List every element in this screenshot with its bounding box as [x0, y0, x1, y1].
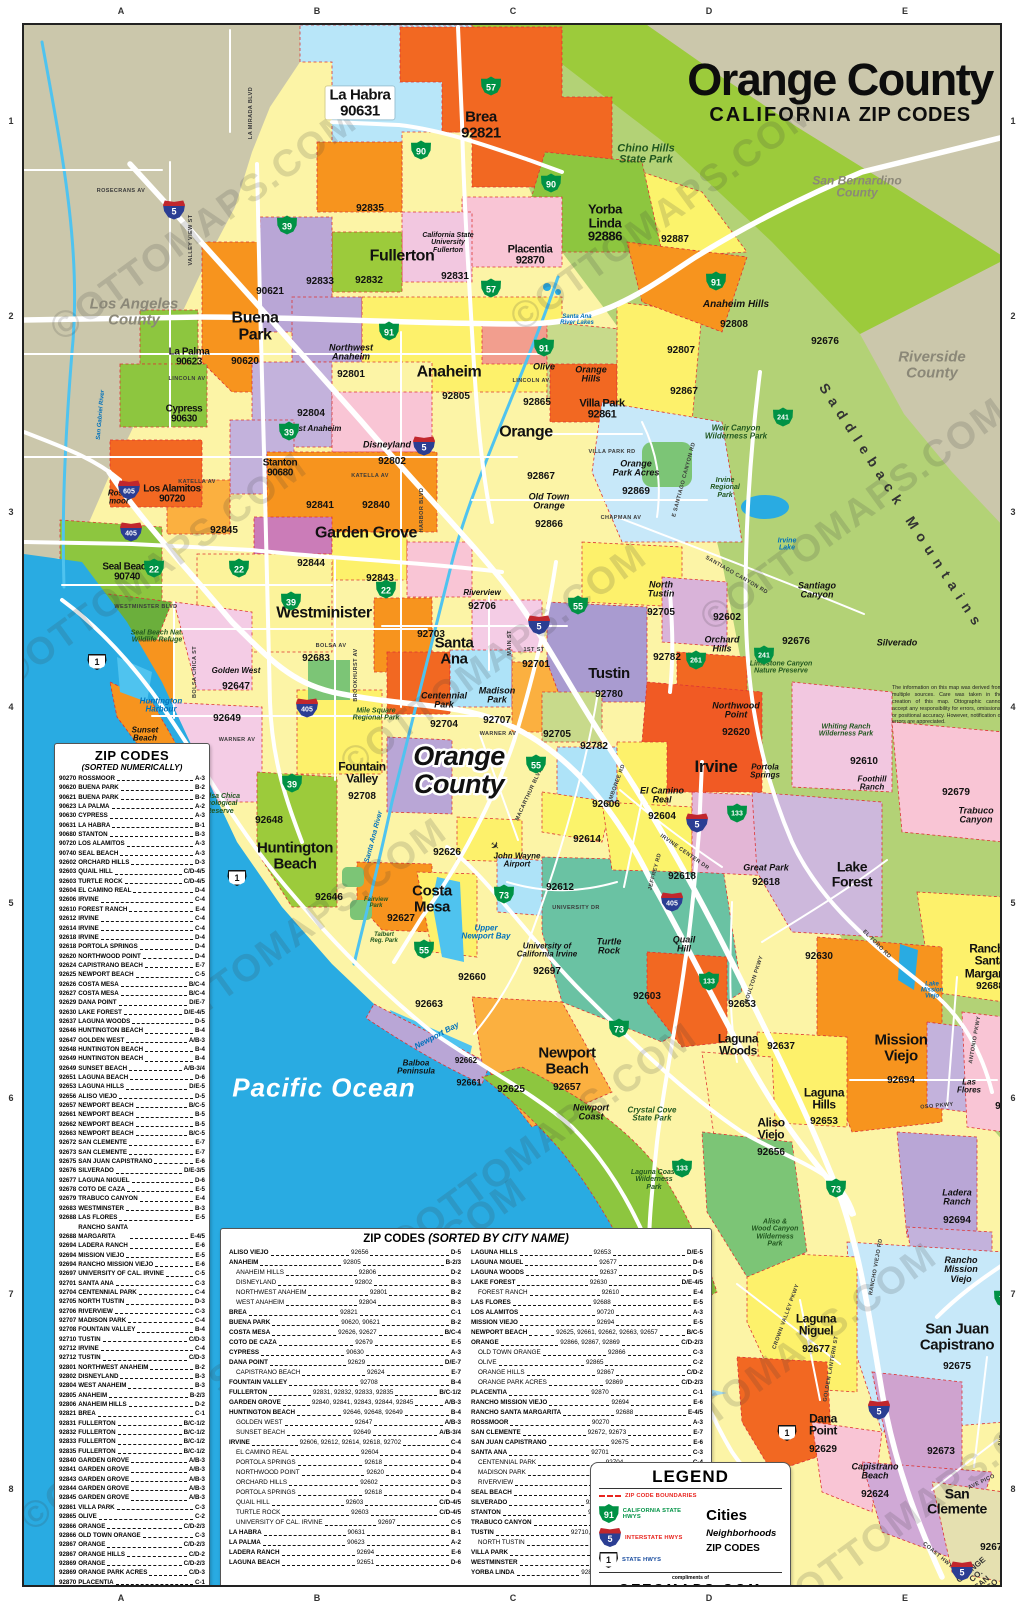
grid-number: 1 — [8, 116, 13, 126]
zip-list-row: 90620BUENA PARKB-2 — [59, 783, 205, 792]
zip-list-row: 92657NEWPORT BEACHB/C-5 — [59, 1101, 205, 1110]
zip-list-row: 92804WEST ANAHEIMB-3 — [59, 1381, 205, 1390]
grid-number: 4 — [8, 702, 13, 712]
grid-letter: A — [118, 1593, 125, 1603]
zip-list-row: 92869ORANGEC/D-2/3 — [59, 1559, 205, 1568]
zip-list-row: 92708FOUNTAIN VALLEYB-4 — [59, 1325, 205, 1334]
grid-number: 5 — [8, 898, 13, 908]
city-list-row: SAN JUAN CAPISTRANO92675E-6 — [471, 1438, 703, 1448]
zip-list-row: 92672SAN CLEMENTEE-7 — [59, 1138, 205, 1147]
legend-item: 1STATE HWYS — [599, 1552, 700, 1568]
city-list-row: OLIVE92865C-2 — [471, 1358, 703, 1368]
grid-number: 8 — [8, 1484, 13, 1494]
city-list-row: WEST ANAHEIM92804B-3 — [229, 1298, 461, 1308]
city-list-row: DISNEYLAND92802B-3 — [229, 1278, 461, 1288]
city-list-row: LOS ALAMITOS90720A-3 — [471, 1308, 703, 1318]
zip-list-row: 92701SANTA ANAC-3 — [59, 1279, 205, 1288]
zip-list-row: 92801NORTHWEST ANAHEIMB-2 — [59, 1363, 205, 1372]
zip-list-row: 92867ORANGEC/D-2/3 — [59, 1540, 205, 1549]
grid-number: 2 — [1010, 311, 1015, 321]
legend-item: 5INTERSTATE HWYS — [599, 1528, 700, 1547]
zip-list-row: 92677LAGUNA NIGUELD-6 — [59, 1176, 205, 1185]
zip-list-row: 92625NEWPORT BEACHC-5 — [59, 970, 205, 979]
title-zipcodes: ZIP CODES — [859, 104, 971, 126]
zip-list-row: 92865OLIVEC-2 — [59, 1512, 205, 1521]
zip-list-row: 92840GARDEN GROVEA/B-3 — [59, 1456, 205, 1465]
city-list-row: MISSION VIEJO92694E-5 — [471, 1318, 703, 1328]
numeric-list-subtitle: (SORTED NUMERICALLY) — [59, 763, 205, 772]
legend-site: OTTOMAPS.COM — [599, 1581, 782, 1587]
zip-list-row: 92805ANAHEIMB-2/3 — [59, 1391, 205, 1400]
zip-list-row: 92706RIVERVIEWC-3 — [59, 1307, 205, 1316]
city-list-row: SAN CLEMENTE92672, 92673E-7 — [471, 1428, 703, 1438]
legend-zipcodes-label: ZIP CODES — [706, 1543, 782, 1554]
city-list-title: ZIP CODES (SORTED BY CITY NAME) — [229, 1233, 703, 1245]
zip-list-row: 92833FULLERTONB/C-1/2 — [59, 1437, 205, 1446]
legend-title: LEGEND — [599, 1467, 782, 1489]
zip-list-row: 92661NEWPORT BEACHB-5 — [59, 1110, 205, 1119]
zip-list-row: 92602ORCHARD HILLSD-3 — [59, 858, 205, 867]
zip-list-row: 92651LAGUNA BEACHD-6 — [59, 1073, 205, 1082]
zip-list-row: 92870PLACENTIAC-1 — [59, 1578, 205, 1587]
city-list-row: LAKE FOREST92630D/E-4/5 — [471, 1278, 703, 1288]
grid-letter: E — [902, 6, 908, 16]
map-canvas: N ©OTTOMAPS.COM©OTTOMAPS.COM©OTTOMAPS.CO… — [22, 23, 1002, 1587]
zip-list-row: 92620NORTHWOOD POINTD-4 — [59, 952, 205, 961]
zip-list-row: 92678COTO DE CAZAE-5 — [59, 1185, 205, 1194]
grid-letter: D — [706, 1593, 713, 1603]
zip-list-row: 92676SILVERADOD/E-3/5 — [59, 1166, 205, 1175]
grid-number: 8 — [1010, 1484, 1015, 1494]
zip-list-row: 92866ORANGEC/D-2/3 — [59, 1522, 205, 1531]
zip-list-row: 92614IRVINEC-4 — [59, 924, 205, 933]
city-list-row: RANCHO SANTA MARGARITA92688E-4/5 — [471, 1408, 703, 1418]
zip-list-row: 92637LAGUNA WOODSD-5 — [59, 1017, 205, 1026]
city-list-row: FOREST RANCH92610E-4 — [471, 1288, 703, 1298]
zip-list-row: 92866OLD TOWN ORANGEC-3 — [59, 1531, 205, 1540]
zip-list-row: 90623LA PALMAA-2 — [59, 802, 205, 811]
city-list-row: LADERA RANCH92694E-6 — [229, 1548, 461, 1558]
zip-list-row: 92694MISSION VIEJOE-5 — [59, 1251, 205, 1260]
city-list-row: ROSSMOOR90270A-3 — [471, 1418, 703, 1428]
zip-list-row: 90740SEAL BEACHA-3 — [59, 849, 205, 858]
grid-letter: C — [510, 1593, 517, 1603]
city-list-row: BREA92821C-1 — [229, 1308, 461, 1318]
city-list-row: COTO DE CAZA92679E-5 — [229, 1338, 461, 1348]
legend-item: ZIP CODE BOUNDARIES — [599, 1493, 700, 1499]
highway-shield-241: 241 — [1001, 984, 1002, 1003]
zip-list-row: 92704CENTENNIAL PARKC-4 — [59, 1288, 205, 1297]
zip-list-row: 92831FULLERTONB/C-1/2 — [59, 1419, 205, 1428]
zip-list-row: 92712IRVINEC-4 — [59, 1344, 205, 1353]
zip-list-row: 90631LA HABRAB-1 — [59, 821, 205, 830]
zip-list-row: 92675SAN JUAN CAPISTRANOE-6 — [59, 1157, 205, 1166]
zip-list-row: 92663NEWPORT BEACHB/C-5 — [59, 1129, 205, 1138]
numeric-list-title: ZIP CODES — [59, 748, 205, 763]
grid-number: 3 — [1010, 507, 1015, 517]
city-list-row: IRVINE92606, 92612, 92614, 92618, 92702C… — [229, 1438, 461, 1448]
city-list-row: GOLDEN WEST92647A/B-3 — [229, 1418, 461, 1428]
legend: LEGEND ZIP CODE BOUNDARIES91CALIFORNIA S… — [590, 1462, 791, 1587]
zip-list-numeric: ZIP CODES (SORTED NUMERICALLY) 90270ROSS… — [54, 743, 210, 1587]
city-list-row: ORCHARD HILLS92602D-3 — [229, 1478, 461, 1488]
city-list-row: BUENA PARK90620, 90621B-2 — [229, 1318, 461, 1328]
grid-number: 1 — [1010, 116, 1015, 126]
zip-list-row: 92604EL CAMINO REALD-4 — [59, 886, 205, 895]
grid-number: 5 — [1010, 898, 1015, 908]
zip-list-row: 92627COSTA MESAB/C-4 — [59, 989, 205, 998]
grid-number: 4 — [1010, 702, 1015, 712]
zip-list-row: 92688RANCHO SANTA MARGARITAE-4/5 — [59, 1223, 205, 1242]
zip-list-row: 92612IRVINEC-4 — [59, 914, 205, 923]
zip-list-row: 92861VILLA PARKC-3 — [59, 1503, 205, 1512]
legend-shield-icon: 91 — [599, 1504, 619, 1523]
city-list-row: QUAIL HILL92603C/D-4/5 — [229, 1498, 461, 1508]
city-list-row: ANAHEIM92805B-2/3 — [229, 1258, 461, 1268]
zip-list-row: 92694LADERA RANCHE-6 — [59, 1241, 205, 1250]
zip-list-row: 92710TUSTINC/D-3 — [59, 1335, 205, 1344]
zip-list-row: 92843GARDEN GROVEA/B-3 — [59, 1475, 205, 1484]
zip-list-row: 92648HUNTINGTON BEACHB-4 — [59, 1045, 205, 1054]
city-list-row: NEWPORT BEACH92625, 92661, 92662, 92663,… — [471, 1328, 703, 1338]
zip-list-row: 92802DISNEYLANDB-3 — [59, 1372, 205, 1381]
grid-letter: C — [510, 6, 517, 16]
zip-list-row: 92694RANCHO MISSION VIEJOE-6 — [59, 1260, 205, 1269]
zip-list-row: 90720LOS ALAMITOSA-3 — [59, 839, 205, 848]
zip-list-row: 92603QUAIL HILLC/D-4/5 — [59, 867, 205, 876]
legend-shield-icon: 5 — [599, 1528, 621, 1547]
grid-letter: E — [902, 1593, 908, 1603]
city-list-row: LA HABRA90631B-1 — [229, 1528, 461, 1538]
zip-list-row: 92705NORTH TUSTIND-3 — [59, 1297, 205, 1306]
grid-number: 3 — [8, 507, 13, 517]
zip-list-row: 92832FULLERTONB/C-1/2 — [59, 1428, 205, 1437]
city-list-row: RANCHO MISSION VIEJO92694E-6 — [471, 1398, 703, 1408]
zip-list-row: 92610FOREST RANCHE-4 — [59, 905, 205, 914]
zip-list-row: 92845GARDEN GROVEA/B-3 — [59, 1493, 205, 1502]
zip-list-row: 92649SUNSET BEACHA/B-3/4 — [59, 1064, 205, 1073]
city-list-row: LA PALMA90623A-2 — [229, 1538, 461, 1548]
zip-list-row: 90680STANTONB-3 — [59, 830, 205, 839]
zip-list-row: 92697UNIVERSITY OF CAL. IRVINEC-5 — [59, 1269, 205, 1278]
city-list-row: NORTHWOOD POINT92620D-4 — [229, 1468, 461, 1478]
zip-list-row: 92656ALISO VIEJOD-5 — [59, 1092, 205, 1101]
city-list-row: LAS FLORES92688E-5 — [471, 1298, 703, 1308]
disclaimer-text: The information on this map was derived … — [892, 685, 1002, 726]
legend-cities-label: Cities — [706, 1507, 782, 1524]
zip-list-row: 92688LAS FLORESE-5 — [59, 1213, 205, 1222]
city-list-row: UNIVERSITY OF CAL. IRVINE92697C-5 — [229, 1518, 461, 1528]
city-list-row: CAPISTRANO BEACH92624E-7 — [229, 1368, 461, 1378]
zip-list-row: 92683WESTMINSTERB-3 — [59, 1204, 205, 1213]
zip-boundary-swatch — [599, 1495, 621, 1497]
title-california: CALIFORNIA — [709, 104, 852, 126]
city-list-row: LAGUNA NIGUEL92677D-6 — [471, 1258, 703, 1268]
zip-list-row: 92624CAPISTRANO BEACHE-7 — [59, 961, 205, 970]
city-list-row: OLD TOWN ORANGE92866C-3 — [471, 1348, 703, 1358]
zip-list-row: 92869ORANGE PARK ACRESC/D-3 — [59, 1568, 205, 1577]
zip-list-row: 92653LAGUNA HILLSD/E-5 — [59, 1082, 205, 1091]
zip-list-row: 92649HUNTINGTON BEACHB-4 — [59, 1054, 205, 1063]
grid-letter: B — [314, 6, 321, 16]
city-list-row: ALISO VIEJO92656D-5 — [229, 1248, 461, 1258]
grid-number: 7 — [1010, 1289, 1015, 1299]
grid-number: 6 — [8, 1093, 13, 1103]
city-list-row: DANA POINT92629D/E-7 — [229, 1358, 461, 1368]
grid-letter: B — [314, 1593, 321, 1603]
legend-item: 91CALIFORNIA STATE HWYS — [599, 1504, 700, 1523]
grid-number: 7 — [8, 1289, 13, 1299]
city-list-row: FULLERTON92831, 92832, 92833, 92835B/C-1… — [229, 1388, 461, 1398]
grid-letter: D — [706, 6, 713, 16]
zip-list-row: 92618IRVINED-4 — [59, 933, 205, 942]
grid-letter: A — [118, 6, 125, 16]
city-list-row: ANAHEIM HILLS92806D-2 — [229, 1268, 461, 1278]
zip-list-row: 92618PORTOLA SPRINGSD-4 — [59, 942, 205, 951]
city-list-row: NORTHWEST ANAHEIM92801B-2 — [229, 1288, 461, 1298]
zip-list-row: 92835FULLERTONB/C-1/2 — [59, 1447, 205, 1456]
zip-list-row: 92603TURTLE ROCKC/D-4/5 — [59, 877, 205, 886]
zip-list-row: 92647GOLDEN WESTA/B-3 — [59, 1036, 205, 1045]
city-list-row: CYPRESS90630A-3 — [229, 1348, 461, 1358]
zip-list-row: 92679TRABUCO CANYONE-4 — [59, 1194, 205, 1203]
city-list-row: LAGUNA HILLS92653D/E-5 — [471, 1248, 703, 1258]
zip-list-row: 92841GARDEN GROVEA/B-3 — [59, 1465, 205, 1474]
city-list-row: ORANGE92866, 92867, 92869C/D-2/3 — [471, 1338, 703, 1348]
map-title: Orange County CALIFORNIA ZIP CODES — [666, 57, 1002, 127]
zip-list-row: 92662NEWPORT BEACHB-5 — [59, 1120, 205, 1129]
city-list-row: HUNTINGTON BEACH92646, 92648, 92649B-4 — [229, 1408, 461, 1418]
zip-list-row: 92673SAN CLEMENTEE-7 — [59, 1148, 205, 1157]
zip-list-row: 92630LAKE FORESTD/E-4/5 — [59, 1008, 205, 1017]
zip-list-row: 92646HUNTINGTON BEACHB-4 — [59, 1026, 205, 1035]
city-list-row: SANTA ANA92701C-3 — [471, 1448, 703, 1458]
map-sheet: N ©OTTOMAPS.COM©OTTOMAPS.COM©OTTOMAPS.CO… — [0, 0, 1024, 1609]
zip-list-row: 90621BUENA PARKB-2 — [59, 793, 205, 802]
zip-list-row: 92867ORANGE HILLSC/D-2 — [59, 1550, 205, 1559]
zip-list-row: 90630CYPRESSA-3 — [59, 811, 205, 820]
zip-list-row: 92629DANA POINTD/E-7 — [59, 998, 205, 1007]
city-list-row: GARDEN GROVE92840, 92841, 92843, 92844, … — [229, 1398, 461, 1408]
city-list-row: ORANGE HILLS92867C/D-2 — [471, 1368, 703, 1378]
zip-list-row: 92606IRVINEC-4 — [59, 895, 205, 904]
zip-list-row: 92712TUSTINC/D-3 — [59, 1353, 205, 1362]
city-list-row: LAGUNA BEACH92651D-6 — [229, 1558, 461, 1568]
city-list-row: PLACENTIA92870C-1 — [471, 1388, 703, 1398]
city-list-row: PORTOLA SPRINGS92618D-4 — [229, 1488, 461, 1498]
title-sub: CALIFORNIA ZIP CODES — [666, 104, 1002, 127]
city-list-row: ORANGE PARK ACRES92869C/D-2/3 — [471, 1378, 703, 1388]
title-main: Orange County — [666, 57, 1002, 102]
zip-list-row: 92844GARDEN GROVEA/B-3 — [59, 1484, 205, 1493]
zip-list-row: 92707MADISON PARKC-4 — [59, 1316, 205, 1325]
city-list-row: EL CAMINO REAL92604D-4 — [229, 1448, 461, 1458]
city-list-row: SUNSET BEACH92649A/B-3/4 — [229, 1428, 461, 1438]
zip-list-row: 92626COSTA MESAB/C-4 — [59, 980, 205, 989]
grid-number: 6 — [1010, 1093, 1015, 1103]
city-list-row: LAGUNA WOODS92637D-5 — [471, 1268, 703, 1278]
city-list-row: TURTLE ROCK92603C/D-4/5 — [229, 1508, 461, 1518]
legend-shield-icon: 1 — [599, 1552, 618, 1568]
zip-list-row: 92806ANAHEIM HILLSD-2 — [59, 1400, 205, 1409]
legend-neighborhoods-label: Neighborhoods — [706, 1528, 782, 1539]
zip-list-row: 90270ROSSMOORA-3 — [59, 774, 205, 783]
city-list-row: PORTOLA SPRINGS92618D-4 — [229, 1458, 461, 1468]
city-list-row: FOUNTAIN VALLEY92708B-4 — [229, 1378, 461, 1388]
grid-number: 2 — [8, 311, 13, 321]
city-list-row: COSTA MESA92626, 92627B/C-4 — [229, 1328, 461, 1338]
zip-list-row: 92821BREAC-1 — [59, 1409, 205, 1418]
